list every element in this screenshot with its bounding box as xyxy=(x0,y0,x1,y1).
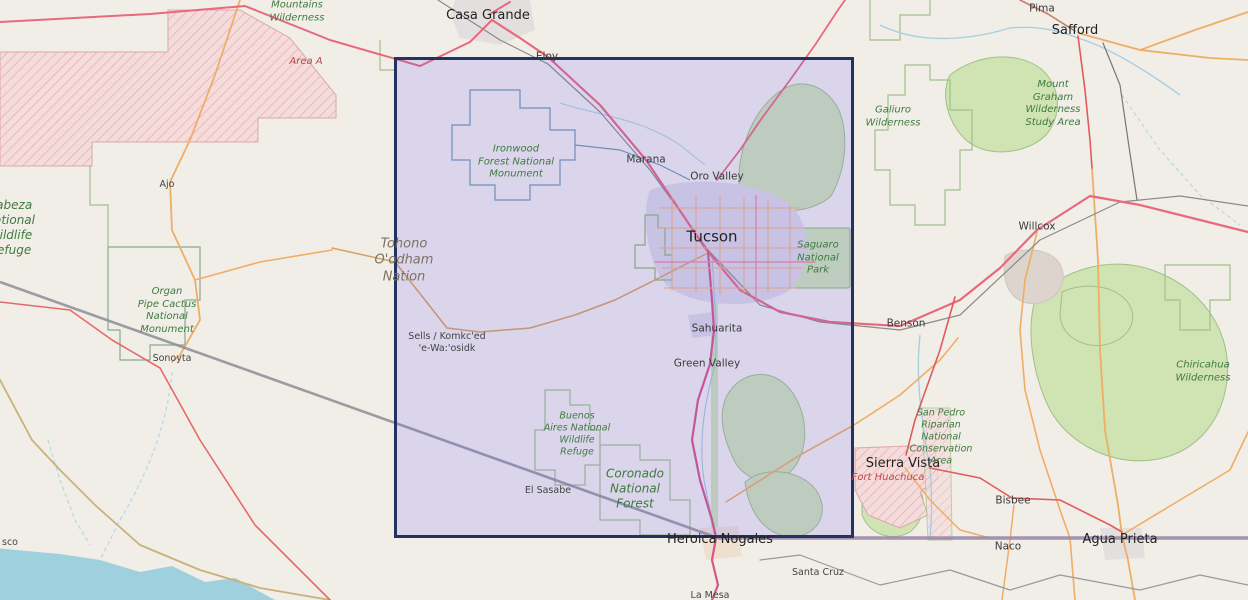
selection-rectangle[interactable] xyxy=(394,57,854,538)
willcox-playa xyxy=(1004,250,1063,304)
water-areas xyxy=(0,548,275,600)
map-canvas[interactable]: Casa Grande Eloy Marana Oro Valley Tucso… xyxy=(0,0,1248,600)
